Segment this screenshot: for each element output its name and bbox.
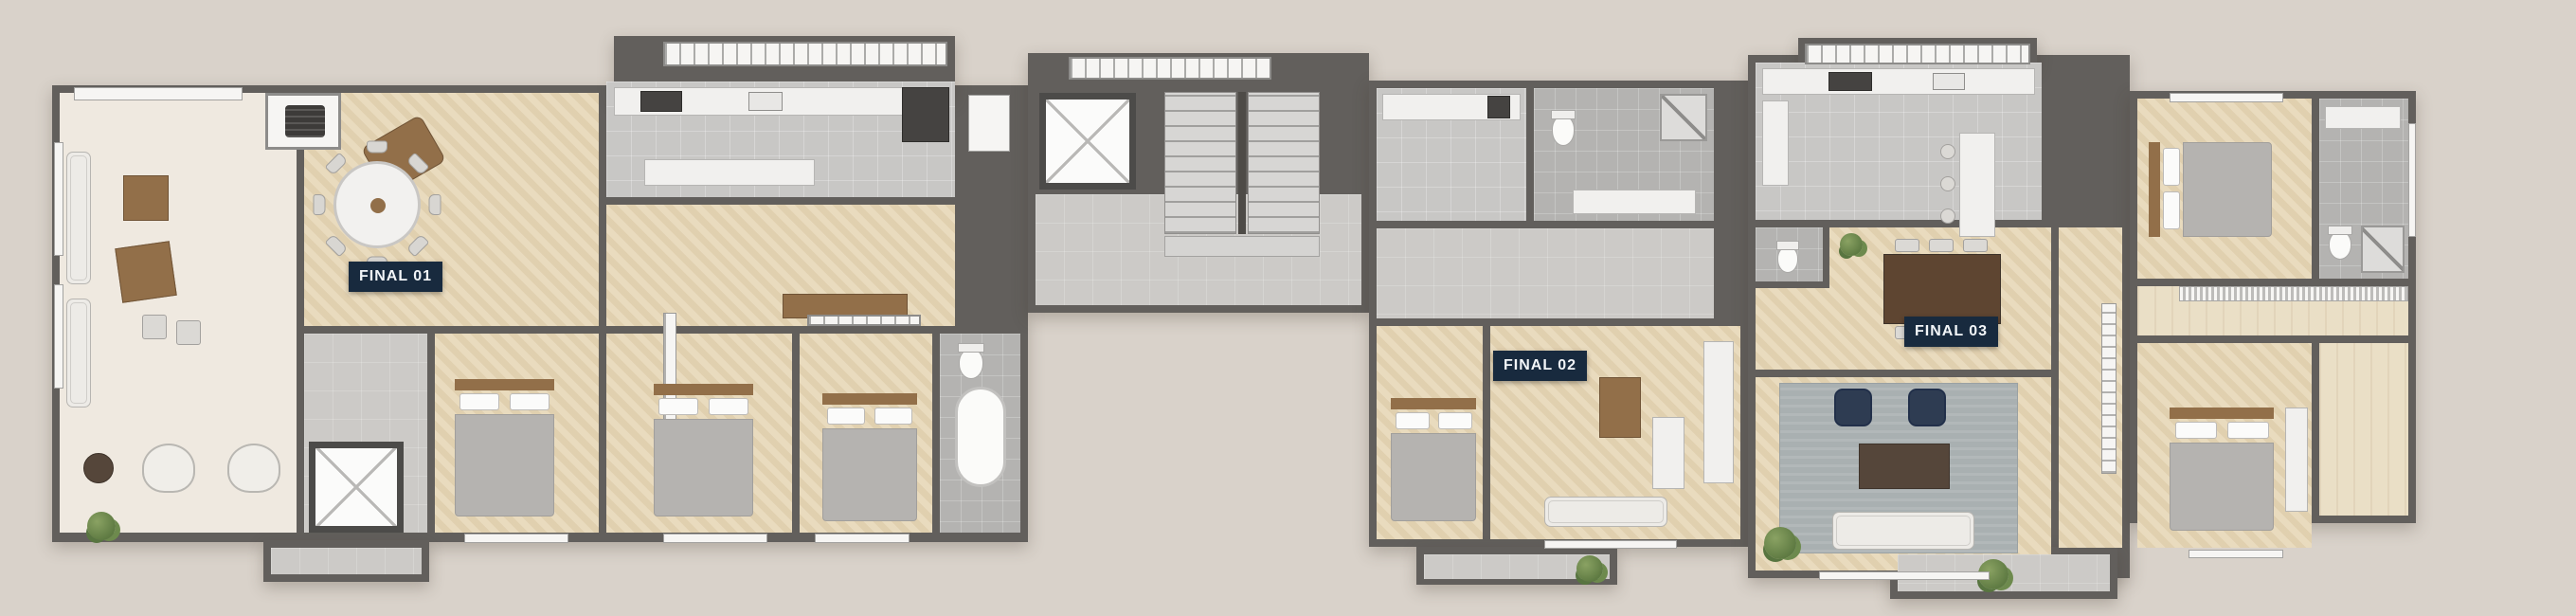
coffee-table	[1859, 444, 1950, 489]
unit3-sofa	[1832, 512, 1974, 550]
master-vanity	[2325, 106, 2401, 129]
bar-stool	[1940, 208, 1955, 224]
sink-icon	[1933, 73, 1965, 90]
unit3-bedroom2-window	[2189, 550, 2283, 558]
pillow	[1438, 412, 1472, 429]
terrace-coffee-table-2	[115, 241, 177, 303]
unit1-bedroom3-window	[815, 534, 910, 543]
living-plant-icon	[1764, 527, 1796, 559]
unit-label-final-02: FINAL 02	[1493, 351, 1587, 381]
duvet	[2170, 443, 2274, 531]
duvet	[654, 419, 753, 516]
bar-stool	[1940, 144, 1955, 159]
bed	[2170, 408, 2274, 531]
terrace-side-table-1	[142, 315, 167, 339]
unit-label-final-01: FINAL 01	[349, 262, 442, 292]
unit1-bedroom2-window	[663, 534, 767, 543]
toilet-icon	[1777, 246, 1798, 273]
toilet-icon	[959, 349, 983, 379]
pillow	[709, 398, 748, 415]
unit3-louver-vent	[1805, 44, 2030, 64]
unit2-hall-floor	[1377, 228, 1714, 318]
bed	[455, 379, 554, 516]
bed	[2149, 142, 2272, 237]
unit1-left-window-2	[54, 284, 63, 389]
dining-chair	[1929, 239, 1954, 252]
pillow	[658, 398, 698, 415]
pillow	[874, 408, 912, 425]
unit3-left-counter	[1762, 100, 1789, 186]
dining-chair	[314, 194, 326, 215]
unit2-kitchen-island	[1652, 417, 1684, 489]
core-elevator	[1039, 93, 1136, 190]
unit1-private-elevator	[309, 442, 404, 533]
duvet	[822, 428, 917, 521]
unit1-duct-vent	[968, 95, 1010, 152]
unit3-living-window	[1819, 571, 1990, 580]
balcony-plant-icon	[1576, 555, 1603, 582]
bed	[822, 393, 917, 521]
terrace-armchair-1	[142, 444, 195, 493]
headboard	[455, 379, 554, 390]
pillow	[2163, 148, 2180, 186]
pillow	[459, 393, 499, 410]
dining-chair	[1895, 239, 1919, 252]
toilet-icon	[2329, 231, 2351, 260]
unit2-window	[1544, 540, 1677, 549]
master-bedroom-window	[2170, 93, 2283, 102]
stairs-rail	[1238, 92, 1246, 234]
barbecue-grill-icon	[285, 105, 325, 137]
terrace-coffee-table-1	[123, 175, 169, 221]
headboard	[2149, 142, 2160, 237]
kitchen-island	[644, 159, 815, 186]
floor-plan: FINAL 01 FINAL 02	[0, 0, 2576, 616]
unit1-left-window-1	[54, 142, 63, 256]
stairs-flight-2	[1248, 92, 1320, 234]
terrace-plant-icon	[87, 512, 116, 540]
shower-icon	[1660, 94, 1707, 141]
duvet	[455, 414, 554, 516]
pillow	[2227, 422, 2269, 439]
terrace-sofa-1	[66, 152, 91, 284]
terrace-planter-window	[74, 87, 243, 100]
pillow	[2163, 191, 2180, 229]
table-centerpiece	[370, 198, 386, 213]
unit1-service-stoop-floor	[271, 548, 422, 574]
unit3-right-window	[2408, 123, 2416, 237]
unit2-sofa	[1544, 497, 1667, 527]
cooktop-icon	[1828, 72, 1872, 91]
unit1-bedroom1-window	[464, 534, 568, 543]
duvet	[1391, 433, 1476, 521]
unit3-breakfast-bar	[1959, 133, 1995, 237]
terrace-side-table-2	[176, 320, 201, 345]
navy-armchair	[1834, 389, 1872, 426]
bed	[1391, 398, 1476, 521]
terrace-round-table	[83, 453, 114, 483]
pillow	[827, 408, 865, 425]
hall-wardrobe-2	[807, 315, 921, 326]
pillow	[1396, 412, 1430, 429]
stairs-landing	[1164, 236, 1320, 257]
pillow	[510, 393, 549, 410]
dining-chair	[367, 141, 387, 154]
core-louver-vent	[1069, 57, 1271, 80]
navy-armchair	[1908, 389, 1946, 426]
corridor-closet	[2101, 303, 2117, 474]
headboard	[1391, 398, 1476, 409]
terrace-armchair-2	[227, 444, 280, 493]
barbecue-box	[265, 93, 341, 150]
unit3-terrace-right-floor	[2319, 343, 2408, 516]
unit-label-final-03: FINAL 03	[1904, 317, 1998, 347]
dining-plant-icon	[1840, 233, 1863, 256]
fridge-column	[902, 87, 949, 142]
stairs-flight-1	[1164, 92, 1236, 234]
desk	[2285, 408, 2308, 512]
unit2-kitchen-counter	[1703, 341, 1734, 483]
cooktop-icon	[640, 91, 682, 112]
round-dining-table	[333, 161, 421, 248]
duvet	[2183, 142, 2272, 237]
headboard	[654, 384, 753, 395]
terrace-curtain	[2179, 286, 2408, 301]
washer-icon	[1487, 96, 1510, 118]
bar-stool	[1940, 176, 1955, 191]
headboard	[822, 393, 917, 405]
unit3-dining-table	[1883, 254, 2001, 324]
unit2-dining-table	[1599, 377, 1641, 438]
dining-chair	[1963, 239, 1988, 252]
bed	[654, 384, 753, 516]
pillow	[2175, 422, 2217, 439]
unit1-kitchen-louver-vent	[663, 42, 947, 66]
bathtub-icon	[955, 387, 1006, 487]
bath-vanity	[1573, 190, 1696, 214]
unit3-kitchen-counter	[1762, 68, 2035, 95]
sink-icon	[748, 92, 783, 111]
dining-chair	[429, 194, 441, 215]
toilet-icon	[1552, 116, 1575, 146]
terrace-sofa-2	[66, 299, 91, 408]
shower-icon	[2361, 226, 2405, 273]
headboard	[2170, 408, 2274, 419]
